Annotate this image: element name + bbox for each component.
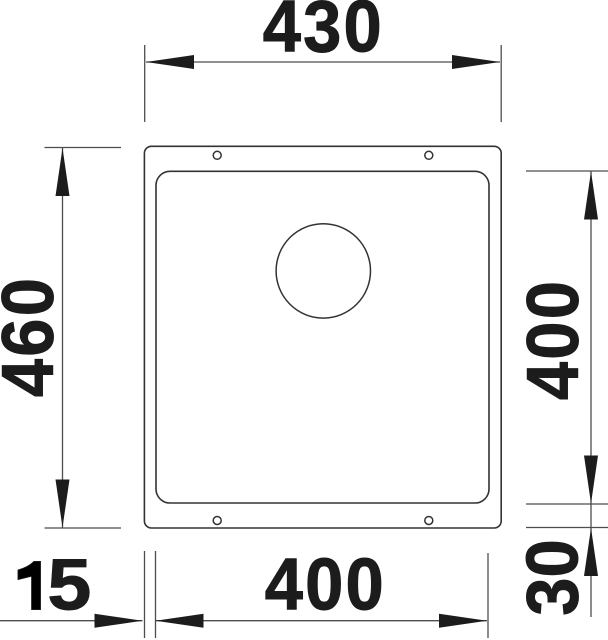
svg-text:400: 400 [513,279,594,400]
svg-text:5: 5 [47,544,91,625]
svg-text:30: 30 [513,539,594,615]
svg-text:460: 460 [0,276,69,397]
svg-text:430: 430 [263,0,384,68]
svg-text:400: 400 [265,544,386,625]
